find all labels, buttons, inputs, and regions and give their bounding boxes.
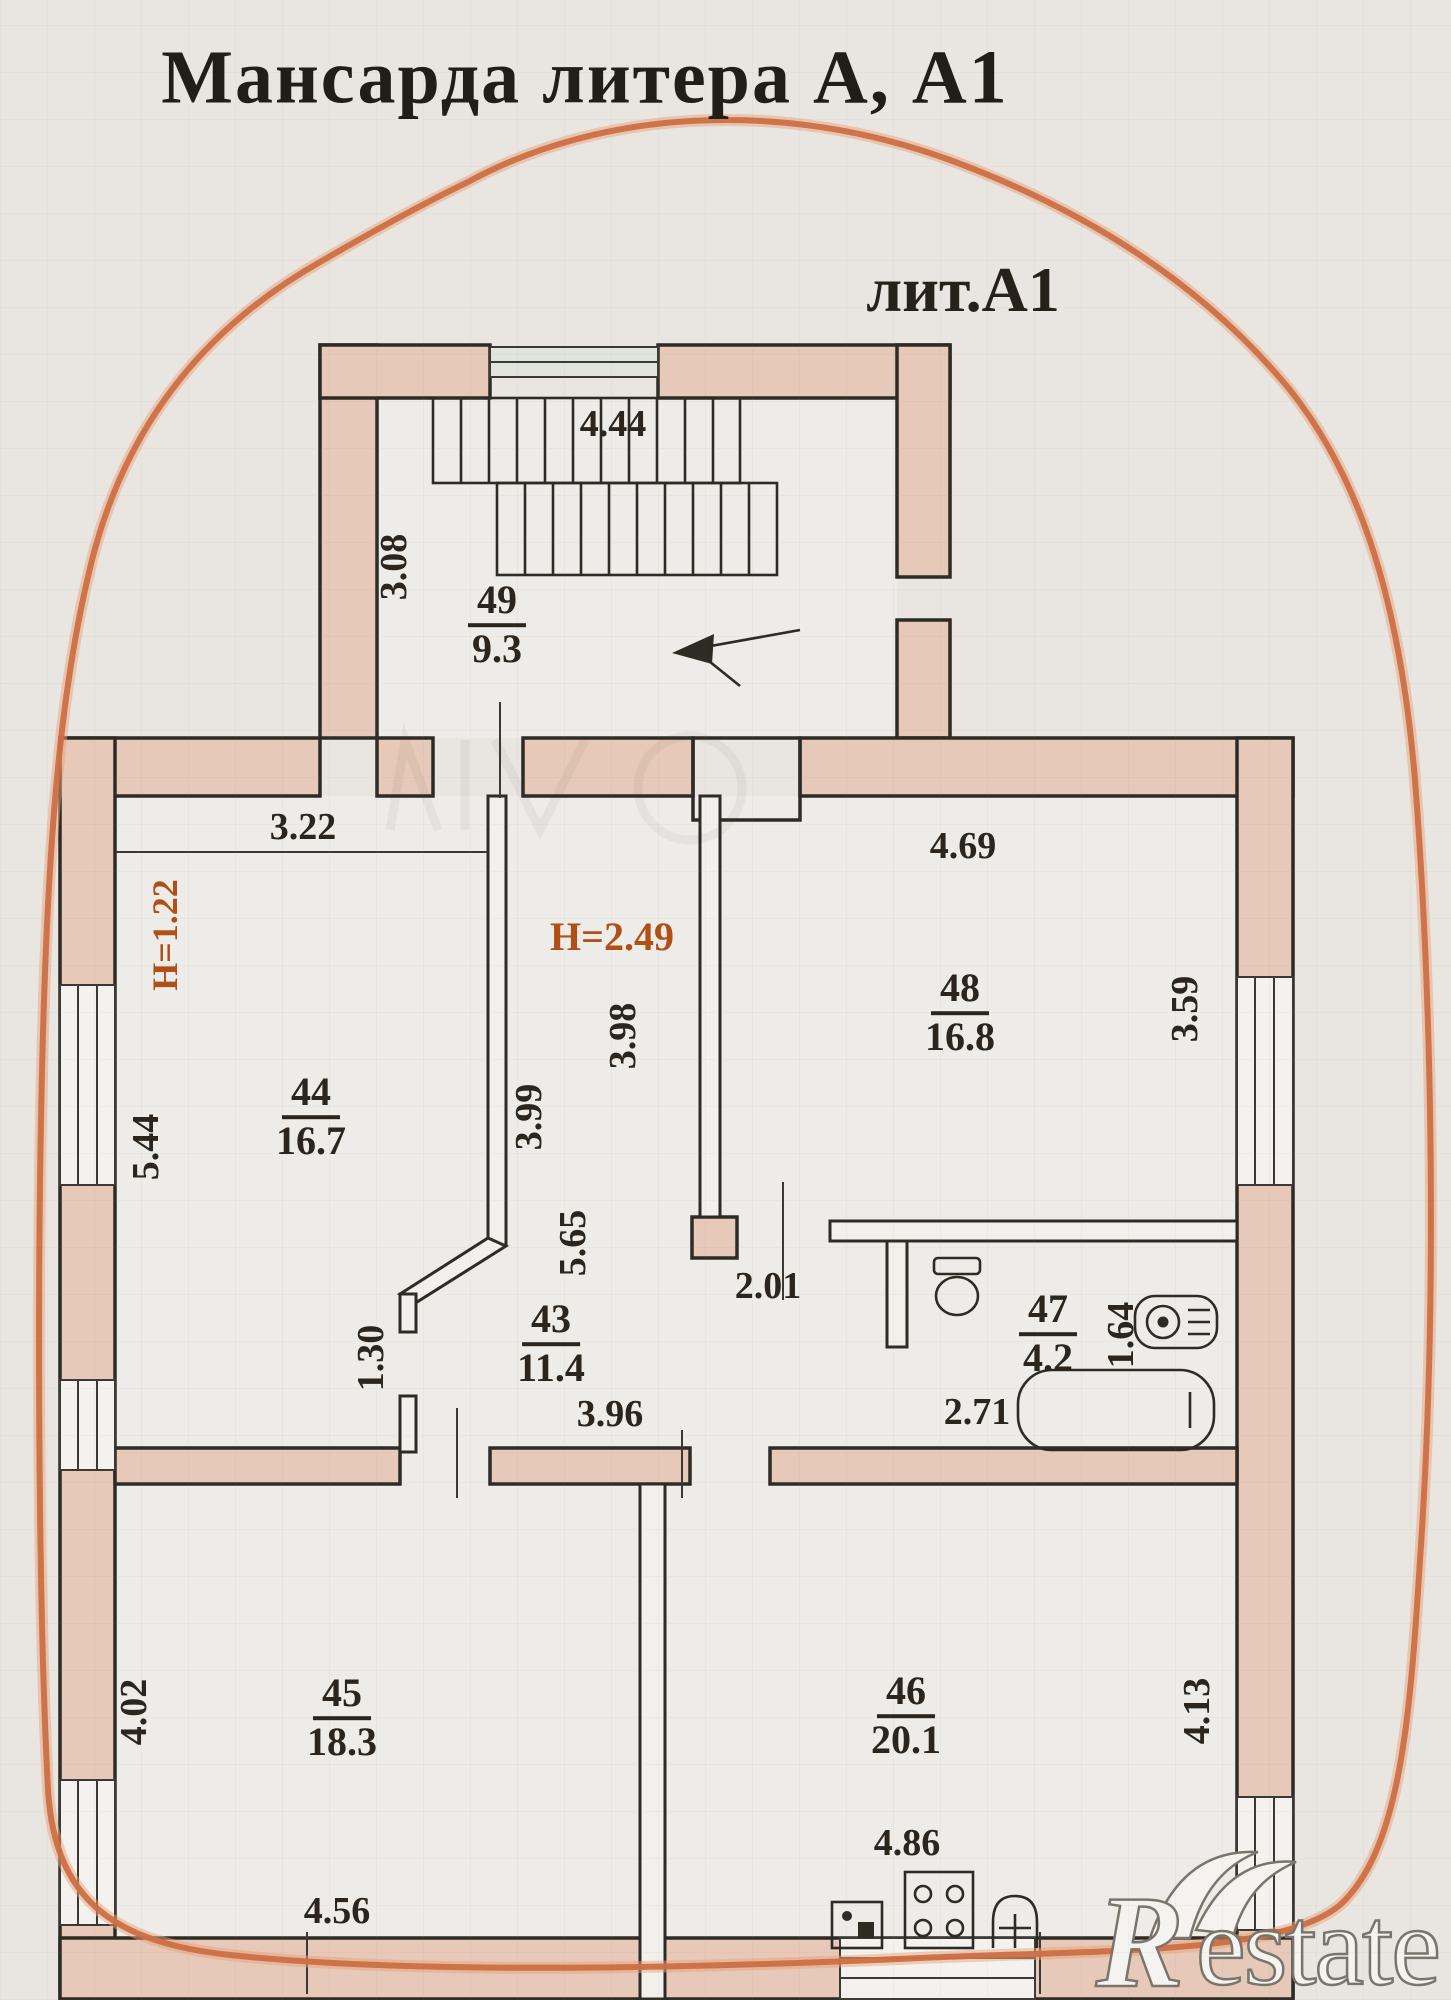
room-label-45: 45 18.3	[307, 1673, 377, 1763]
room-label-49: 49 9.3	[468, 580, 526, 670]
floor-label: лит.А1	[866, 253, 1060, 327]
room-number: 46	[871, 1671, 941, 1712]
room-area: 18.3	[307, 1722, 377, 1763]
room-area: 16.7	[276, 1121, 346, 1162]
dim-4-44: 4.44	[580, 405, 647, 443]
dim-3-96: 3.96	[577, 1395, 644, 1433]
dim-3-99: 3.99	[510, 1084, 548, 1151]
scanned-floor-plan-page: R estate Мансарда литера А, А1 лит.А1 49…	[0, 0, 1451, 2000]
dim-3-59: 3.59	[1166, 976, 1204, 1043]
room-number: 47	[1019, 1289, 1077, 1330]
dim-4-56: 4.56	[304, 1892, 371, 1930]
dim-1-64: 1.64	[1102, 1302, 1140, 1369]
room-number: 43	[517, 1299, 585, 1340]
room-number: 49	[468, 580, 526, 621]
dim-2-01: 2.01	[735, 1267, 802, 1305]
room-label-48: 48 16.8	[925, 968, 995, 1058]
room-area: 9.3	[468, 629, 526, 670]
dim-2-71: 2.71	[944, 1393, 1011, 1431]
page-title: Мансарда литера А, А1	[161, 35, 1008, 122]
dim-1-30: 1.30	[352, 1325, 390, 1392]
dim-3-98: 3.98	[604, 1003, 642, 1070]
height-mark-1-22: Н=1.22	[147, 879, 183, 991]
room-label-44: 44 16.7	[276, 1072, 346, 1162]
dim-3-22: 3.22	[270, 808, 337, 846]
room-number: 44	[276, 1072, 346, 1113]
dim-3-08: 3.08	[375, 534, 413, 601]
room-label-43: 43 11.4	[517, 1299, 585, 1389]
room-label-47: 47 4.2	[1019, 1289, 1077, 1379]
room-number: 45	[307, 1673, 377, 1714]
room-area: 20.1	[871, 1720, 941, 1761]
dim-4-02: 4.02	[115, 1679, 153, 1746]
dim-5-44: 5.44	[127, 1114, 165, 1181]
room-area: 11.4	[517, 1348, 585, 1389]
dim-4-13: 4.13	[1178, 1678, 1216, 1745]
labels-layer: Мансарда литера А, А1 лит.А1 49 9.3 44 1…	[0, 0, 1451, 2000]
room-number: 48	[925, 968, 995, 1009]
room-label-46: 46 20.1	[871, 1671, 941, 1761]
room-area: 16.8	[925, 1017, 995, 1058]
dim-5-65: 5.65	[554, 1210, 592, 1277]
dim-4-86: 4.86	[874, 1824, 941, 1862]
dim-4-69: 4.69	[930, 827, 997, 865]
height-mark-2-49: Н=2.49	[550, 917, 674, 957]
room-area: 4.2	[1019, 1338, 1077, 1379]
